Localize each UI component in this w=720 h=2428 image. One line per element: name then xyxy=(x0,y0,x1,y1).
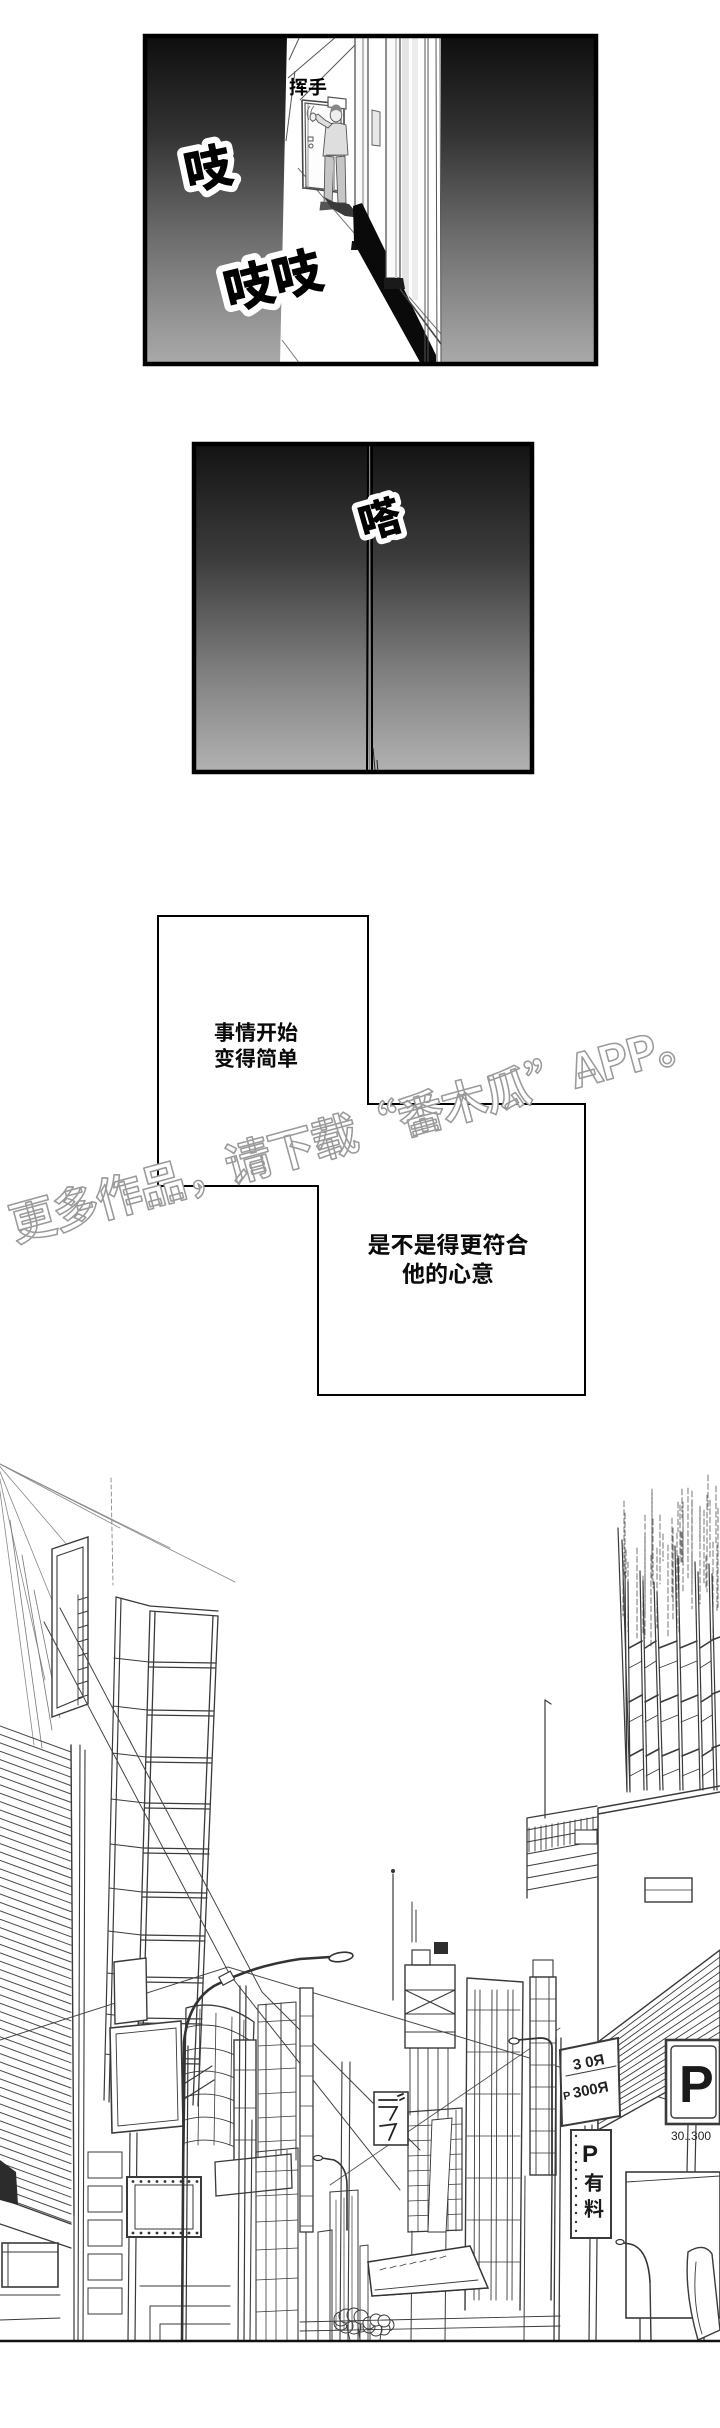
svg-text:P: P xyxy=(582,2141,598,2168)
svg-text:30..300: 30..300 xyxy=(671,2129,711,2143)
svg-text:P: P xyxy=(679,2056,714,2114)
